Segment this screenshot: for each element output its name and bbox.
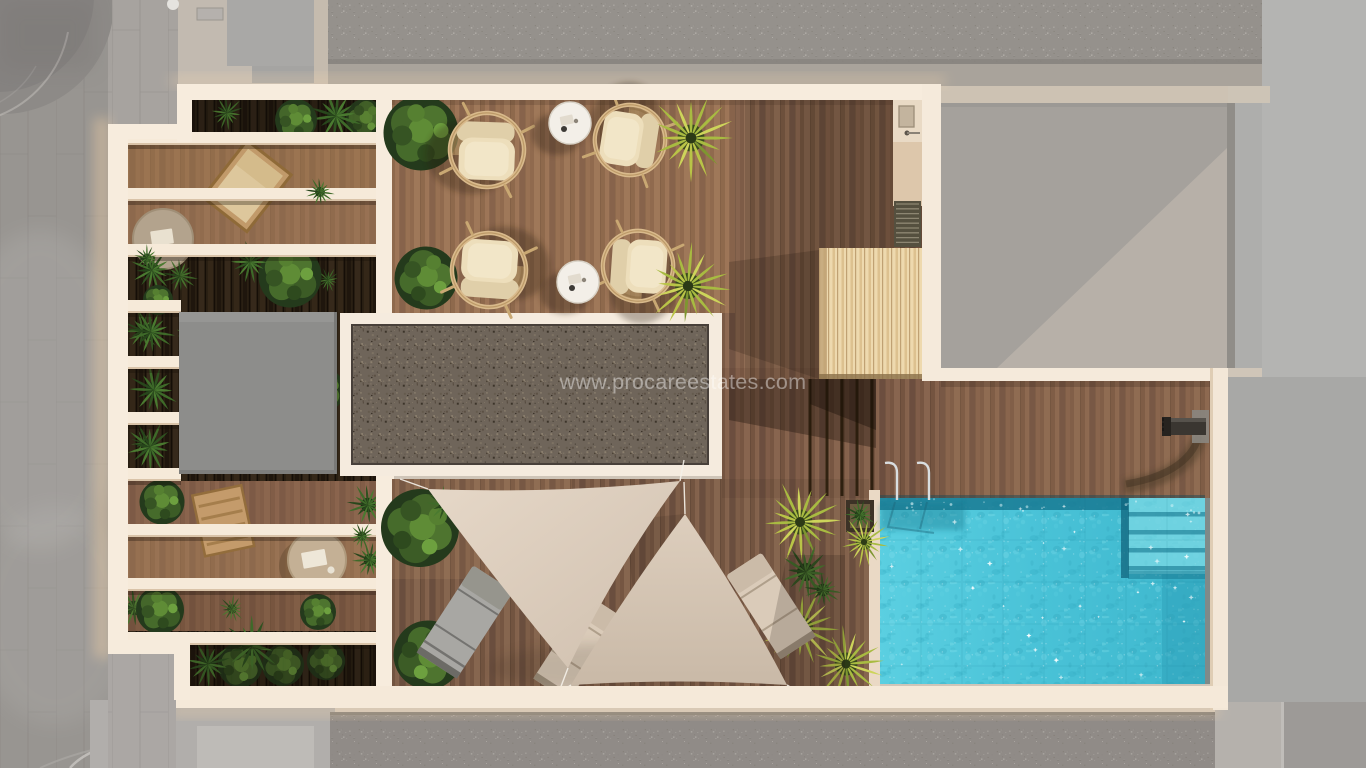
svg-text:www.procareestates.com: www.procareestates.com: [559, 370, 807, 394]
